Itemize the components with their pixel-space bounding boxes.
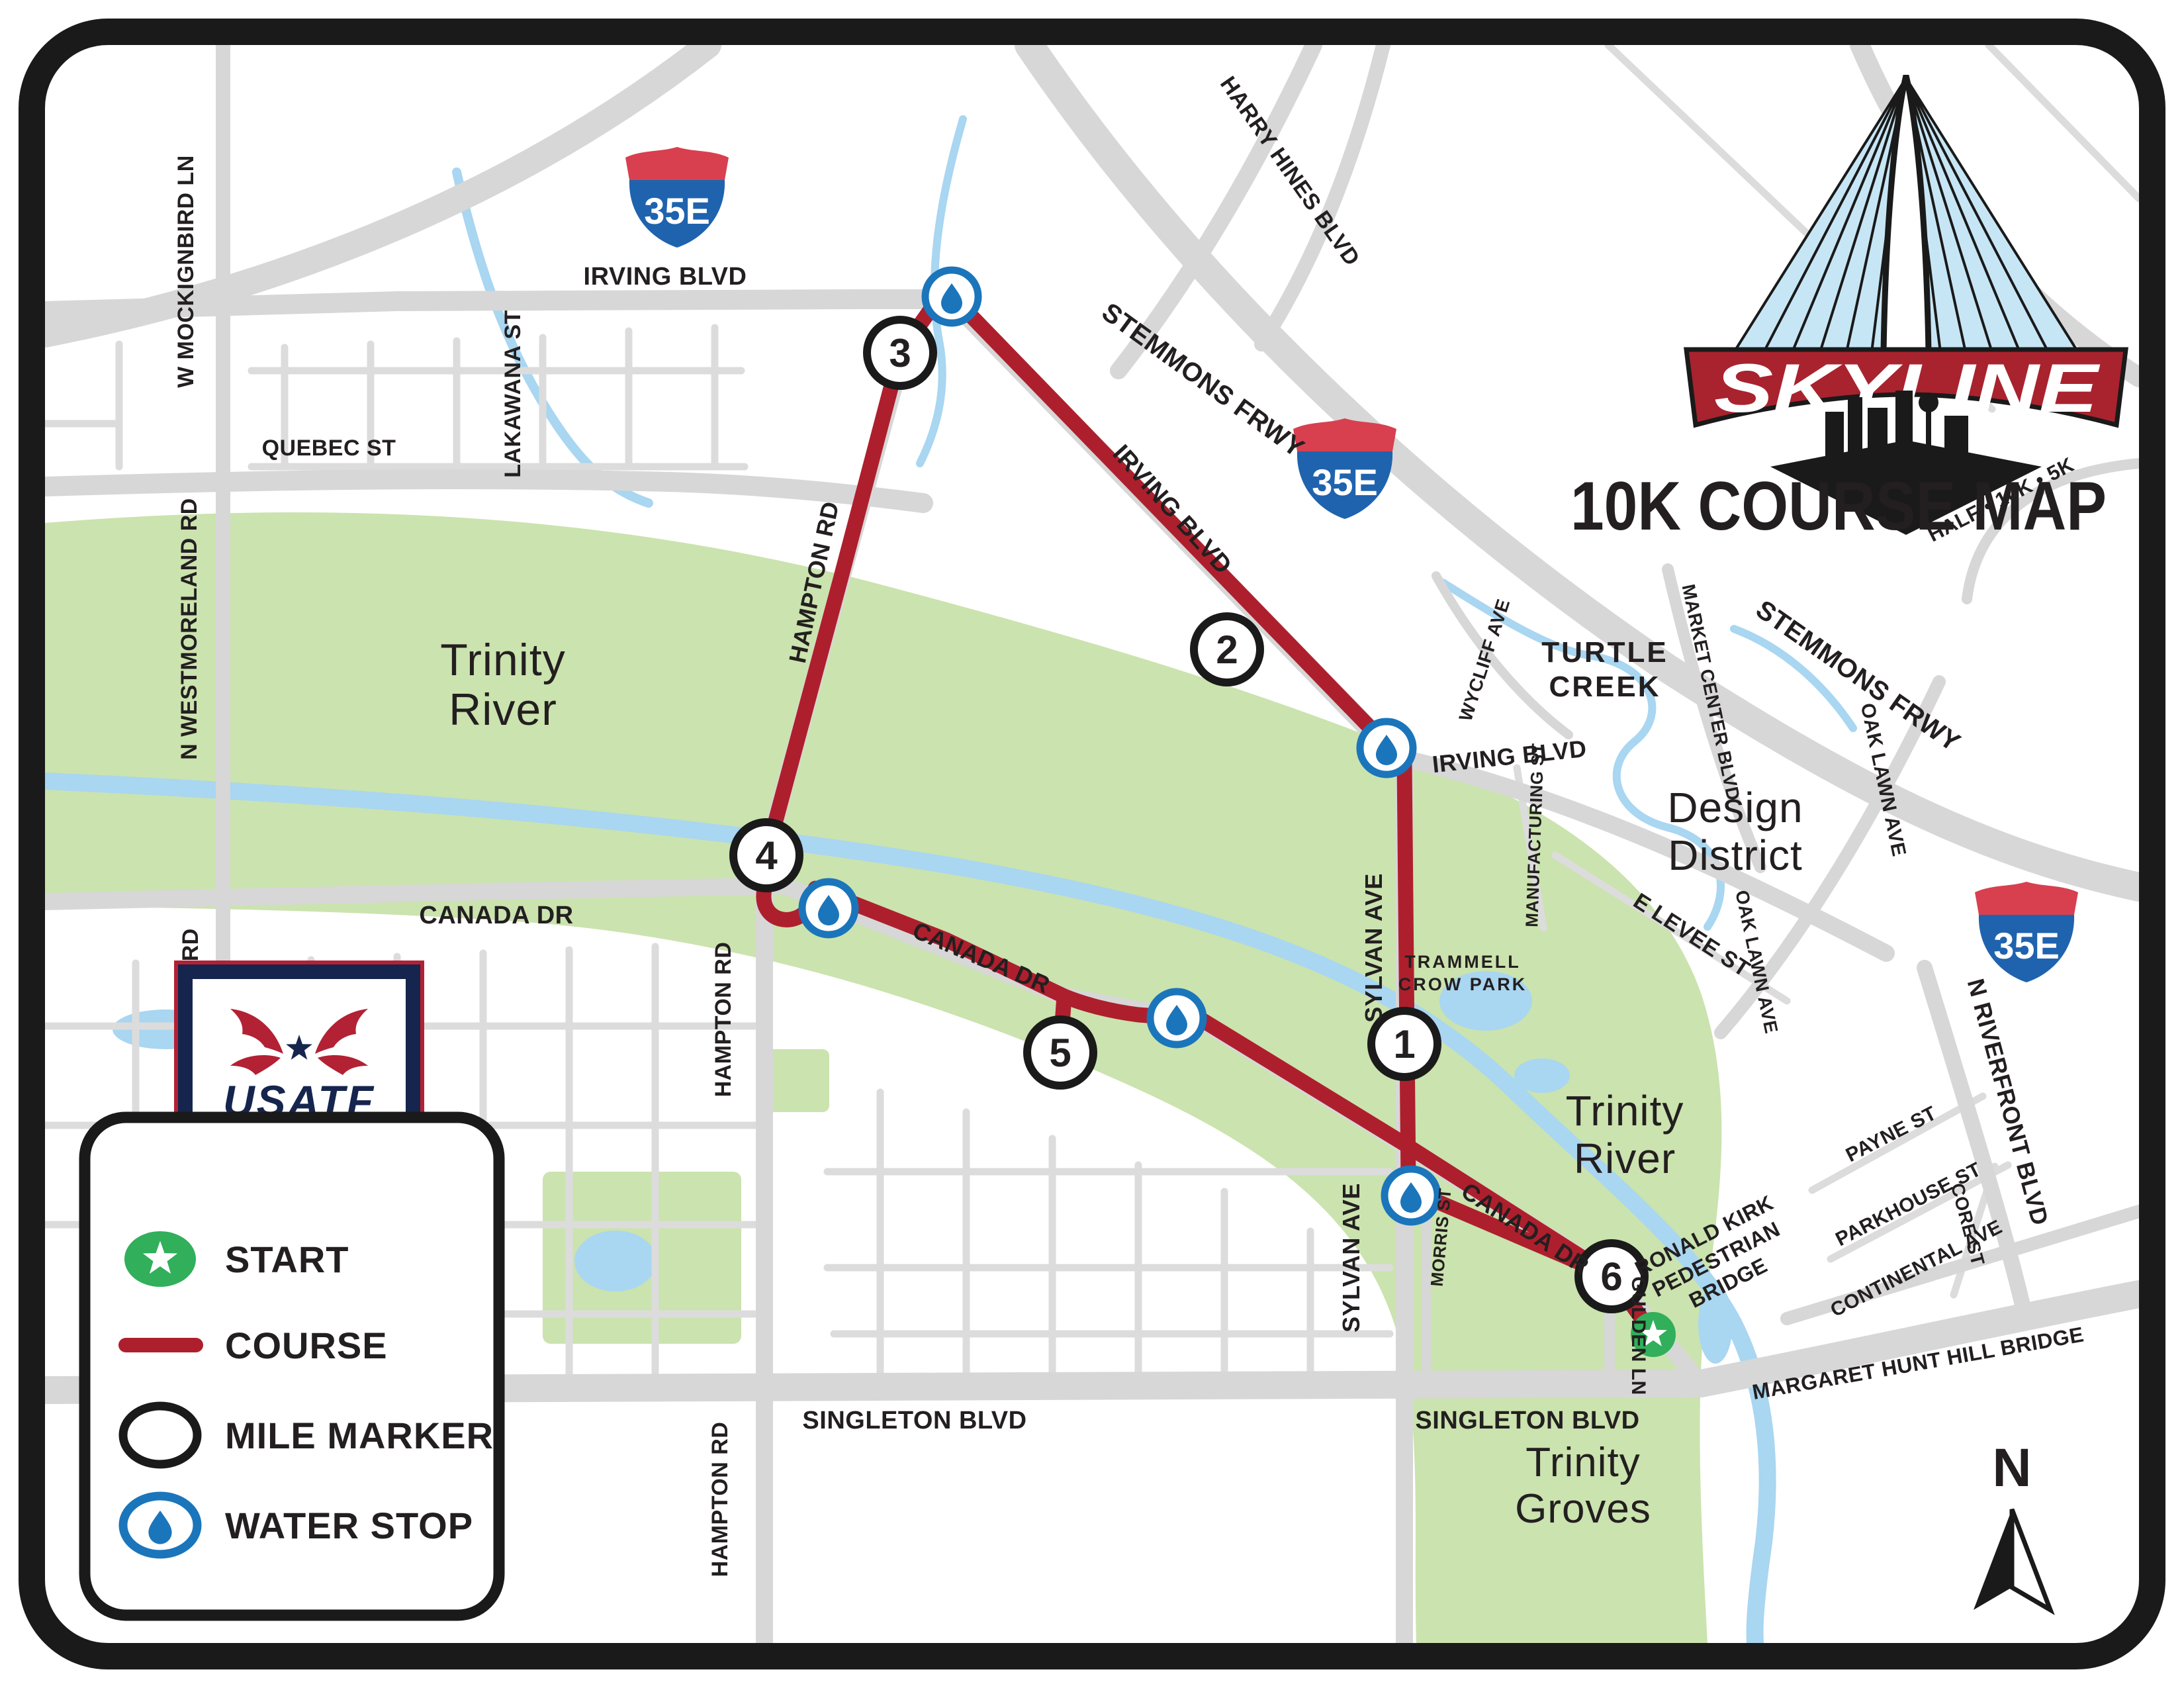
street-label: CANADA DR (419, 902, 573, 929)
water-stop-1 (925, 270, 978, 323)
mile-3-label: 3 (889, 331, 911, 375)
i35e-shield-1-label: 35E (644, 190, 710, 232)
street-label: GULDEN LN (1627, 1276, 1649, 1395)
area-line: Trinity (1525, 1440, 1640, 1485)
water-stop-3 (802, 882, 855, 935)
area-trinity-river-west: Trinity River (440, 635, 566, 735)
mile-marker-3: 3 (867, 320, 933, 386)
mile-marker-5: 5 (1027, 1019, 1093, 1086)
street-label: SYLVAN AVE (1338, 1183, 1365, 1333)
area-design-district: Design District (1667, 784, 1803, 879)
water-stop-5 (1385, 1169, 1437, 1222)
legend-item-water-stop: WATER STOP (123, 1496, 473, 1554)
pond-trammell-crow-2 (1514, 1058, 1570, 1093)
legend-mile-marker-label: MILE MARKER (225, 1415, 494, 1456)
legend-start-label: START (225, 1239, 349, 1280)
street-label: IRVING BLVD (584, 263, 747, 291)
mile-marker-4: 4 (733, 822, 799, 888)
compass-n-label: N (1992, 1438, 2031, 1498)
map-area: 1 2 3 4 5 6 35E 35E 35E W MOCKIGNBIRD LN… (0, 0, 2184, 1688)
area-trinity-river-east: Trinity River (1566, 1087, 1684, 1182)
mile-6-label: 6 (1600, 1254, 1622, 1299)
street-label: SINGLETON BLVD (1415, 1407, 1639, 1434)
street-label: SINGLETON BLVD (802, 1407, 1026, 1434)
street-label: N WESTMORELAND RD (177, 498, 202, 760)
street-label: W MOCKIGNBIRD LN (173, 155, 199, 388)
area-line: Trinity (1566, 1087, 1684, 1135)
legend-item-mile-marker: MILE MARKER (123, 1406, 494, 1464)
mile-marker-2: 2 (1194, 616, 1260, 682)
street-label: HAMPTON RD (707, 1422, 733, 1577)
street-label: LAKAWANA ST (500, 310, 525, 478)
area-line: River (449, 684, 557, 735)
i35e-shield-3-label: 35E (1993, 925, 2060, 966)
legend-water-stop-label: WATER STOP (225, 1505, 473, 1546)
area-line: TRAMMELL (1404, 952, 1520, 972)
mile-2-label: 2 (1216, 628, 1238, 672)
legend-item-start: START (124, 1231, 349, 1287)
legend: START COURSE MILE MARKER WATER STOP (85, 1117, 499, 1615)
mile-1-label: 1 (1393, 1022, 1415, 1066)
area-line: CROW PARK (1398, 974, 1527, 994)
street-label: SYLVAN AVE (1360, 873, 1387, 1023)
page-title: 10K COURSE MAP (1570, 468, 2107, 545)
area-line: River (1574, 1135, 1676, 1182)
course-map-canvas: 1 2 3 4 5 6 35E 35E 35E W MOCKIGNBIRD LN… (0, 0, 2184, 1688)
area-line: Design (1667, 784, 1803, 831)
area-line: District (1668, 831, 1803, 879)
area-trinity-groves: Trinity Groves (1515, 1440, 1651, 1532)
water-stop-2 (1360, 722, 1413, 774)
legend-course-label: COURSE (225, 1325, 388, 1366)
area-line: CREEK (1549, 671, 1661, 703)
mile-marker-icon (123, 1406, 197, 1464)
street-label: QUEBEC ST (262, 436, 396, 461)
mile-5-label: 5 (1049, 1031, 1071, 1075)
area-line: Groves (1515, 1486, 1651, 1532)
pond (574, 1231, 657, 1291)
mile-4-label: 4 (755, 833, 778, 878)
area-line: TURTLE (1541, 636, 1668, 669)
i35e-shield-2-label: 35E (1312, 461, 1378, 503)
area-line: Trinity (440, 635, 566, 685)
street-label: HAMPTON RD (711, 942, 736, 1098)
water-stop-4 (1150, 992, 1203, 1045)
course-map-page: 1 2 3 4 5 6 35E 35E 35E W MOCKIGNBIRD LN… (0, 0, 2184, 1688)
